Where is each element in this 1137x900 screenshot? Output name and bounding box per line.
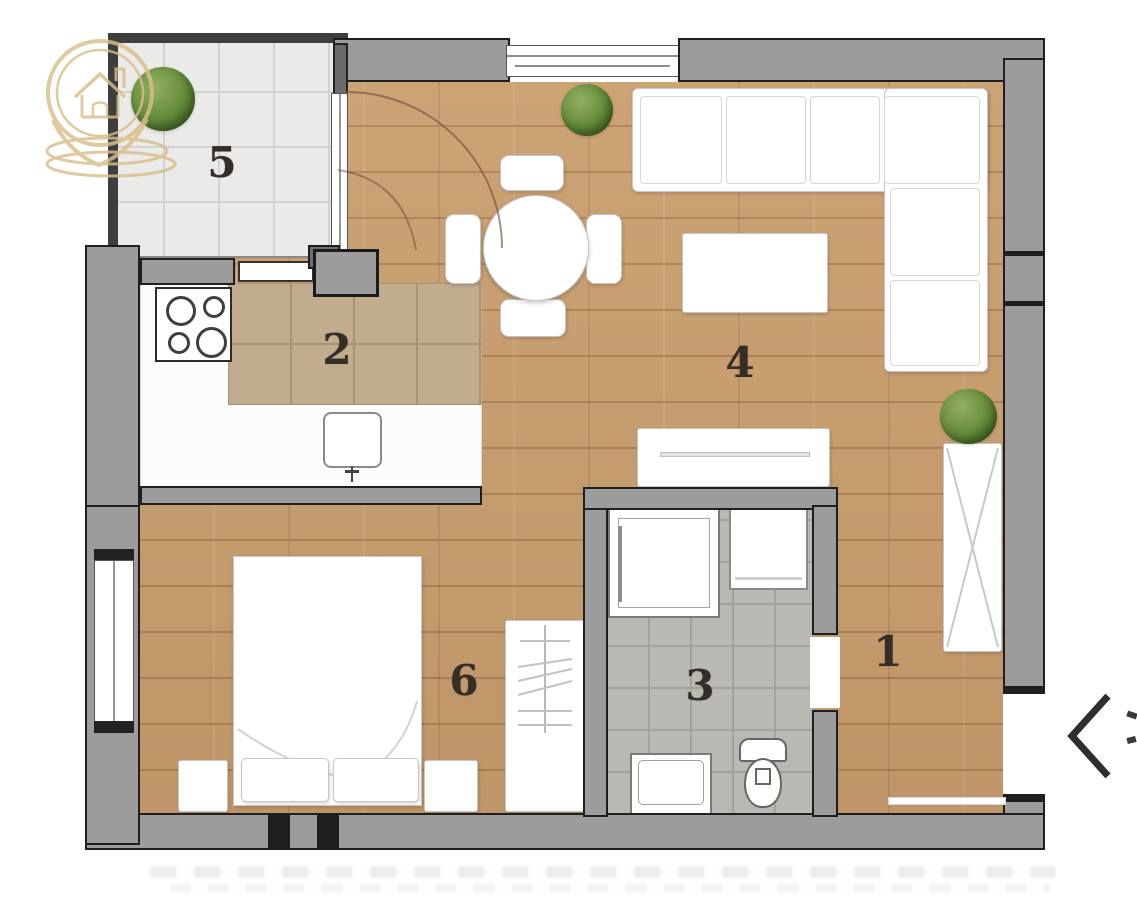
sofa-cushion [890,280,980,366]
nightstand [424,760,478,812]
wall-bathroom-right-upper [812,505,838,635]
edge-cropped-glyph [1126,736,1136,744]
shower-cabin [608,508,720,618]
sofa-cushion [640,96,722,184]
cropped-bottom-text-artifact [170,884,1050,892]
burner [168,332,190,354]
house-location-pin-logo-icon [25,20,190,180]
entry-threshold [888,797,1006,805]
room-label-kitchen: 2 [322,329,351,371]
bed-pillow [333,758,419,802]
wall-left-kitchen [85,245,140,507]
washing-machine [729,508,808,590]
sofa-cushion [890,188,980,276]
bedroom-window [94,560,134,722]
tv-sideboard [637,428,830,487]
wall-bottom [85,813,1045,850]
sofa-cushion [726,96,806,184]
washing-machine-front [735,577,802,580]
potted-plant-icon [940,389,997,444]
tv-on-sideboard [660,452,810,457]
window-sill [94,721,134,733]
wall-kitchen-top [140,258,235,285]
carousel-previous-button[interactable] [1064,690,1118,782]
stove-cooktop [155,287,232,362]
sofa-cushion [810,96,880,184]
wall-joint [1003,301,1045,306]
wall-top-right [678,38,1045,82]
shower-tray [618,518,710,608]
floor-plan-image: 1 2 3 4 5 6 [0,0,1137,900]
nightstand [178,760,228,812]
burner [203,296,225,318]
kitchen-sink [323,412,382,468]
coffee-table [682,233,828,313]
burner [196,327,227,358]
bathroom-door-opening [810,637,840,708]
room-label-hallway: 1 [873,631,902,673]
window-top [506,45,680,77]
wall-bathroom-right-lower [812,710,838,817]
sink-basin [638,760,704,805]
kitchen-pass-through-sill [238,261,314,282]
dining-chair [500,299,566,337]
wall-top-middle [333,38,510,82]
kitchen-faucet-icon [345,466,359,482]
dining-chair [586,214,622,284]
corridor-shelf-cabinet [505,620,585,812]
toilet-flush-icon [755,768,771,785]
wall-bathroom-top [583,487,838,510]
wall-right-upper [1003,58,1045,694]
wall-stub [268,813,290,850]
door-opening-cap [1003,686,1045,694]
room-label-balcony: 5 [207,142,236,184]
bathroom-sink-vanity [630,753,712,815]
wall-kitchen-bottom [140,486,482,505]
shower-glass-panel [618,526,622,602]
room-label-bedroom: 6 [449,660,478,702]
burner [166,296,196,326]
room-label-living-room: 4 [725,342,754,384]
potted-plant-icon [561,84,613,136]
edge-cropped-glyph [1126,711,1137,720]
wall-stub [317,813,339,850]
sofa-cushion [884,96,980,184]
cropped-bottom-text-artifact [150,866,1055,878]
room-label-bathroom: 3 [685,665,714,707]
wall-joint [1003,251,1045,256]
wall-bathroom-left [583,487,608,817]
hallway-wardrobe [943,443,1002,652]
kitchen-tile-floor [228,283,482,405]
bed-pillow [241,758,329,802]
door-swing-arcs [330,80,530,275]
chevron-left-icon [1064,690,1118,782]
